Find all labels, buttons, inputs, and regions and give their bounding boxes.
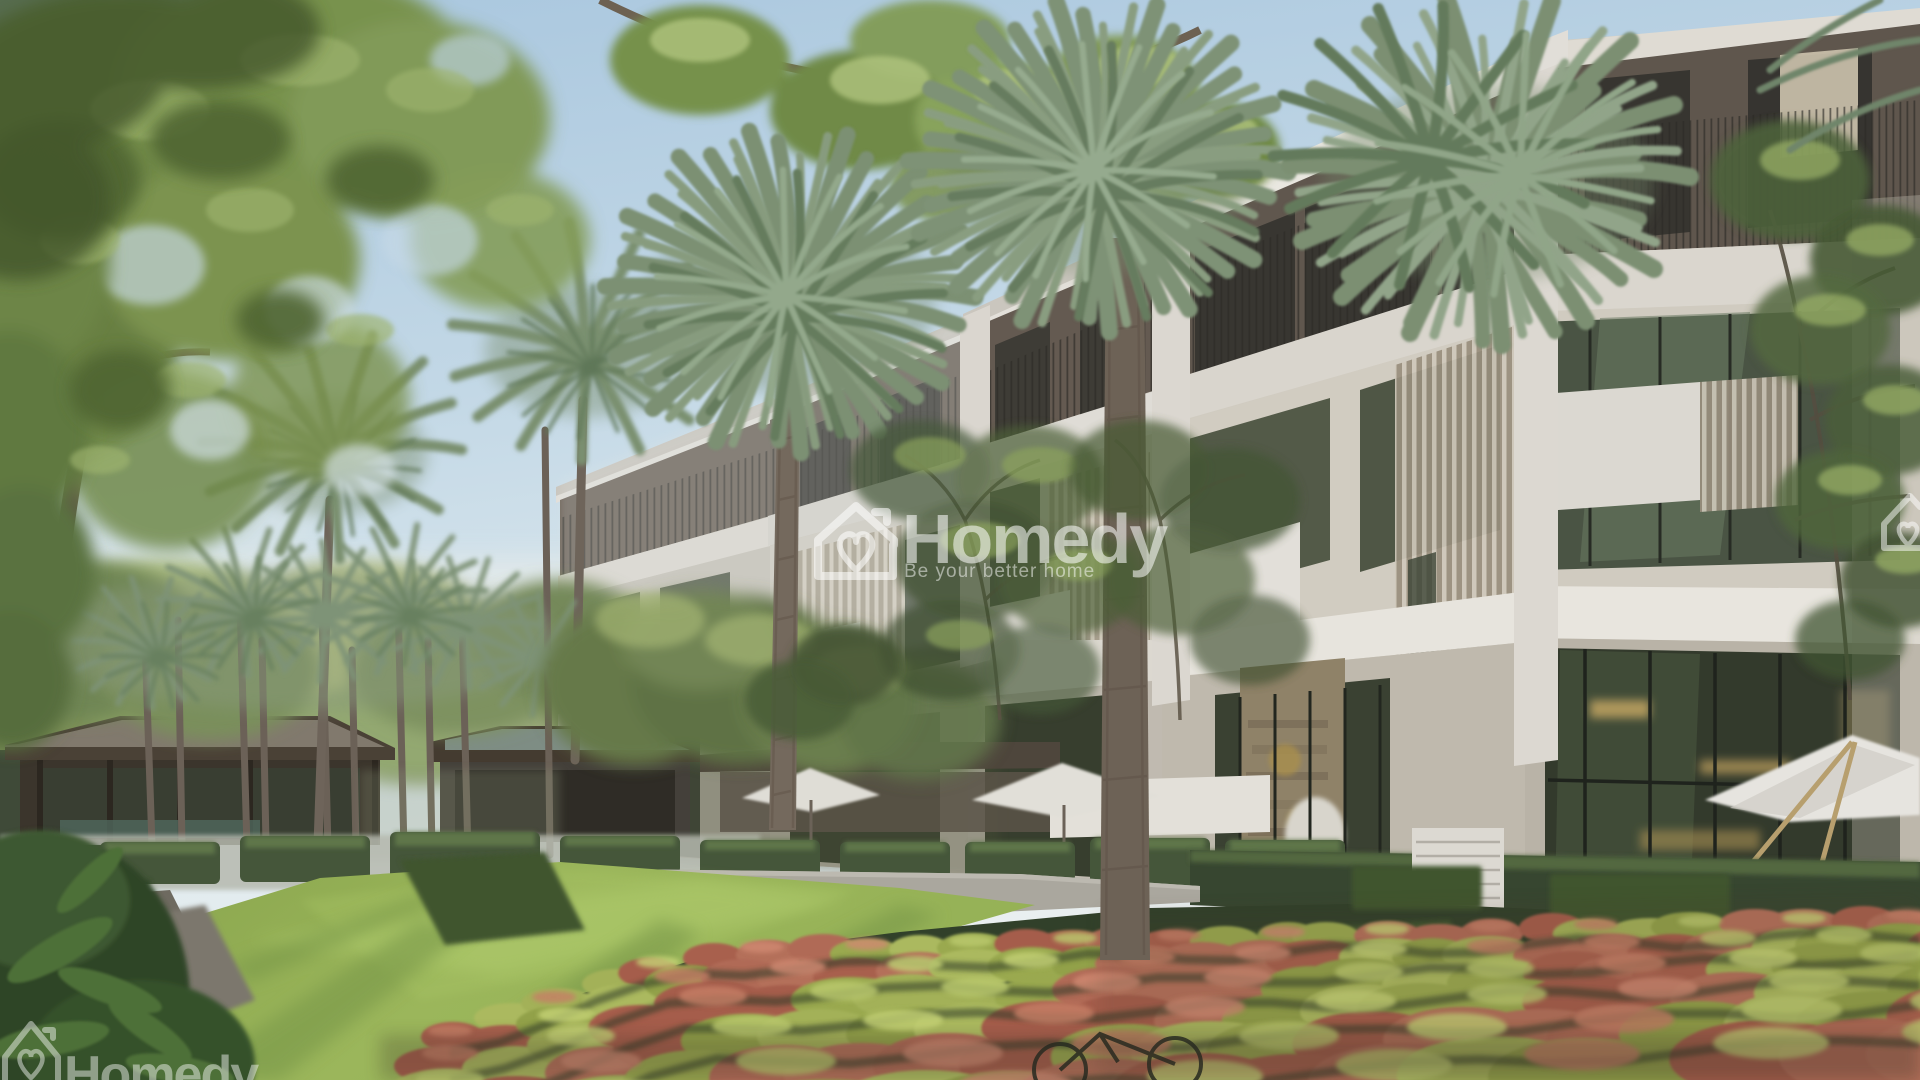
svg-text:Be your better home: Be your better home xyxy=(904,561,1095,582)
svg-text:Homedy: Homedy xyxy=(64,1046,259,1080)
